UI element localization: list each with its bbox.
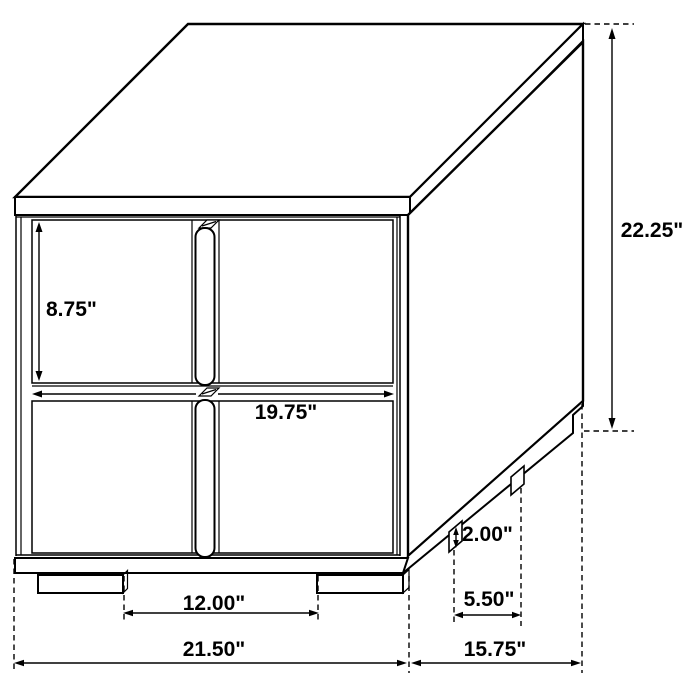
front-left-leg: [38, 575, 123, 593]
front-right-leg: [317, 575, 403, 593]
dim-label-front-leg-spacing: 12.00": [183, 592, 246, 615]
dim-front-leg-spacing: 12.00": [123, 576, 319, 623]
dim-label-overall-depth: 15.75": [464, 638, 527, 661]
top-panel-front-face: [15, 197, 410, 215]
dim-label-side-leg-spacing: 5.50": [464, 588, 515, 611]
dim-leg-height: 2.00": [453, 523, 513, 548]
nightstand-dimension-diagram: 22.25" 8.75" 19.75" 2.00": [0, 0, 700, 700]
dim-label-leg-height: 2.00": [462, 523, 513, 546]
plinth-front-face: [15, 558, 408, 573]
base-plinth: [15, 558, 408, 573]
drawer-handle-bottom: [196, 400, 215, 557]
cabinet-drawing: [15, 24, 583, 593]
dim-drawer-height: 8.75": [36, 222, 97, 381]
dim-label-drawer-width: 19.75": [255, 401, 318, 424]
dim-overall-height: 22.25": [584, 24, 683, 431]
diagram-canvas: 22.25" 8.75" 19.75" 2.00": [0, 0, 700, 700]
dim-label-drawer-height: 8.75": [46, 298, 97, 321]
dim-label-overall-width: 21.50": [183, 638, 246, 661]
dim-label-overall-height: 22.25": [621, 219, 684, 242]
drawer-handle-top: [196, 228, 215, 385]
